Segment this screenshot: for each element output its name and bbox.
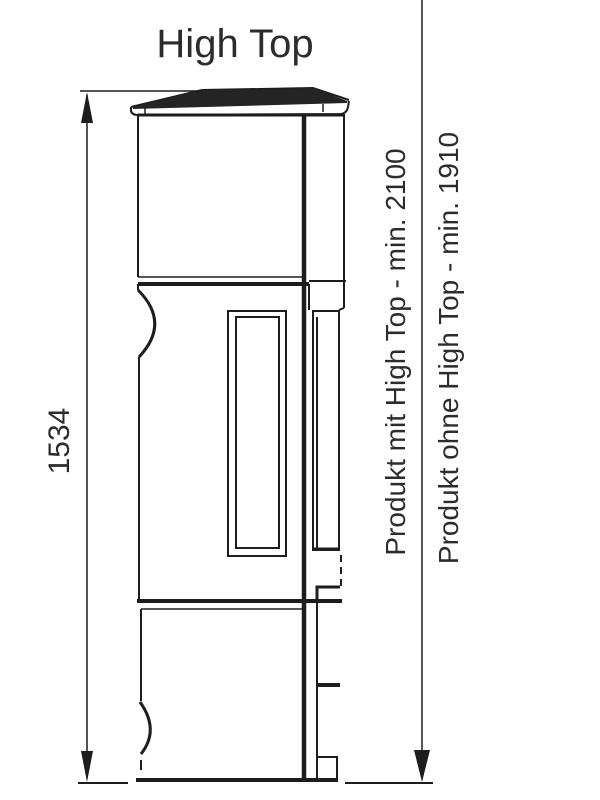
side-notch (317, 587, 340, 600)
diagram-title: High Top (120, 22, 350, 66)
right-edge-join (339, 308, 344, 310)
technical-drawing-canvas: High Top 1534 Produkt mit High Top - min… (0, 0, 600, 800)
arrowhead-up (81, 92, 93, 123)
door-glass-inner (236, 317, 279, 548)
height-dimension-label: 1534 (43, 408, 77, 475)
base-foot (318, 757, 337, 780)
arrowhead-down-right (414, 750, 430, 782)
stove-line-drawing (0, 0, 600, 800)
upper-box (138, 114, 346, 780)
arrowhead-down (81, 751, 93, 782)
stove-body (138, 284, 341, 600)
ash-door-arc (140, 702, 150, 754)
stove-base (136, 601, 342, 780)
high-top-cap (131, 88, 349, 115)
without-high-top-label: Produkt ohne High Top - min. 1910 (433, 132, 465, 564)
door-handle-arc (138, 290, 155, 357)
with-high-top-label: Produkt mit High Top - min. 2100 (380, 148, 412, 555)
